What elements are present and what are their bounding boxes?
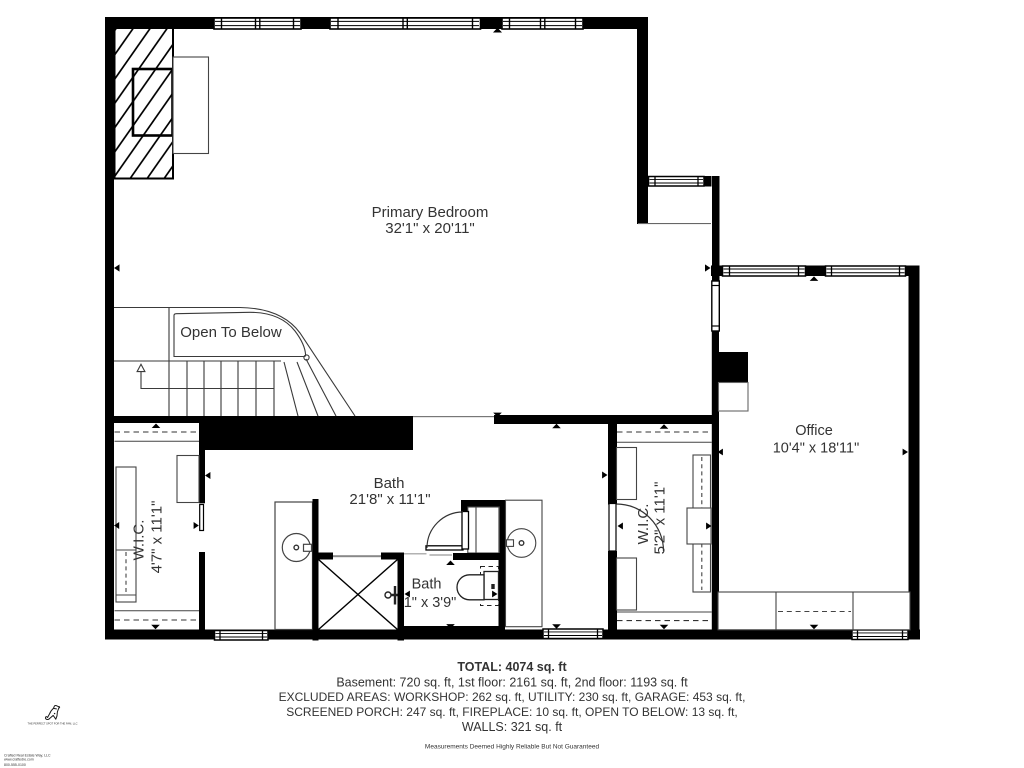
- svg-text:TOTAL: 4074 sq. ft: TOTAL: 4074 sq. ft: [457, 660, 567, 674]
- svg-text:Bath: Bath: [412, 577, 442, 593]
- svg-text:Office: Office: [795, 423, 833, 439]
- svg-text:Measurements Deemed Highly Rel: Measurements Deemed Highly Reliable But …: [425, 744, 600, 751]
- svg-text:Bath: Bath: [374, 475, 405, 492]
- svg-text:www.craftedre.com: www.craftedre.com: [4, 758, 34, 762]
- svg-text:SCREENED PORCH: 247 sq. ft, FI: SCREENED PORCH: 247 sq. ft, FIREPLACE: 1…: [286, 705, 738, 719]
- svg-text:10'4" x 18'11": 10'4" x 18'11": [773, 441, 860, 457]
- svg-text:W.I.C.: W.I.C.: [635, 504, 652, 545]
- svg-text:32'1" x 20'11": 32'1" x 20'11": [385, 220, 475, 237]
- svg-text:800-555-0100: 800-555-0100: [4, 763, 26, 767]
- svg-text:4'7" x 11'1": 4'7" x 11'1": [149, 501, 166, 574]
- svg-text:WALLS: 321 sq. ft: WALLS: 321 sq. ft: [462, 720, 563, 734]
- svg-text:5'2" x 11'1": 5'2" x 11'1": [652, 482, 669, 555]
- svg-text:21'8" x 11'1": 21'8" x 11'1": [349, 491, 430, 508]
- svg-text:EXCLUDED AREAS: WORKSHOP: 262: EXCLUDED AREAS: WORKSHOP: 262 sq. ft, UT…: [279, 690, 746, 704]
- svg-text:THE PERFECT SPOT FOR THE FAM,: THE PERFECT SPOT FOR THE FAM, LLC: [27, 721, 77, 725]
- svg-text:Open To Below: Open To Below: [180, 324, 282, 341]
- svg-text:1" x 3'9": 1" x 3'9": [404, 595, 457, 611]
- svg-text:Primary Bedroom: Primary Bedroom: [372, 204, 489, 221]
- svg-text:W.I.C.: W.I.C.: [131, 520, 148, 561]
- svg-text:Basement: 720 sq. ft, 1st floo: Basement: 720 sq. ft, 1st floor: 2161 sq…: [336, 676, 688, 690]
